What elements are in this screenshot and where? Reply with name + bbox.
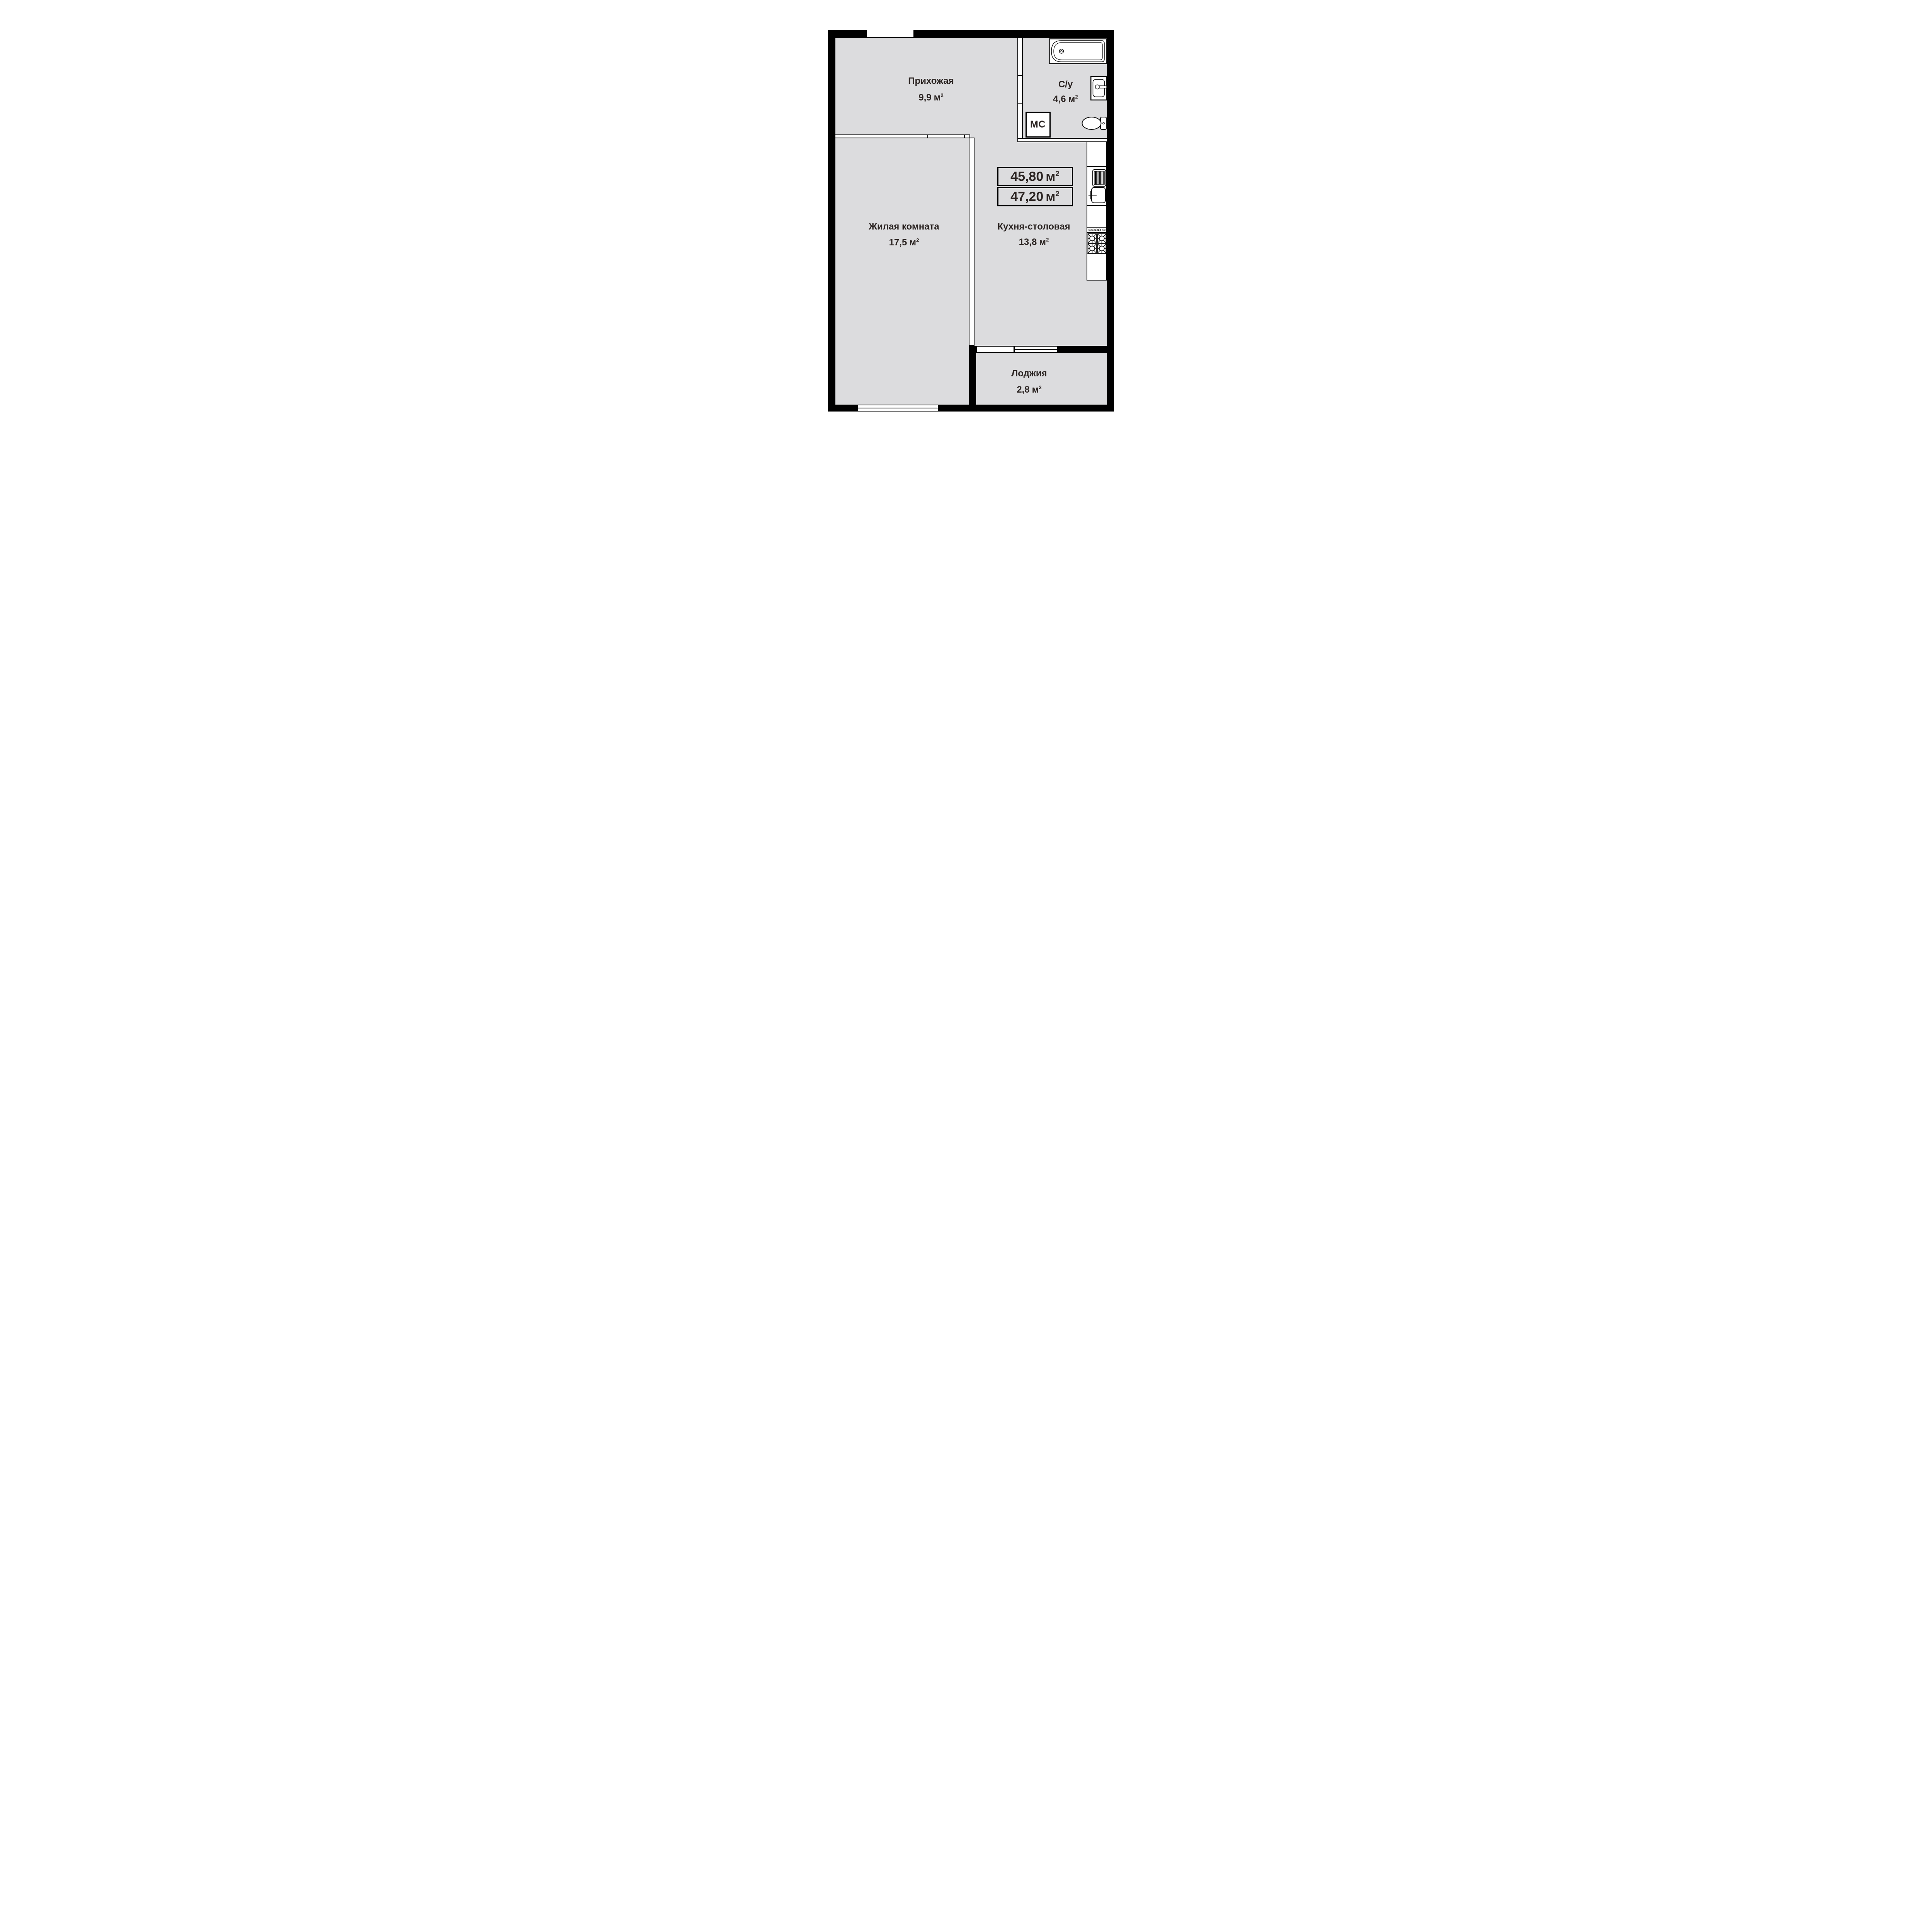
loggia-door-opening (976, 346, 1014, 353)
wall-joint-icon (1018, 103, 1022, 104)
dish-rack-icon (1093, 170, 1106, 186)
wall-joint-icon (927, 135, 928, 138)
room-label-bathroom: С/у 4,6м2 (1027, 79, 1104, 105)
total-living-value: 45,80 (1010, 169, 1043, 184)
window-top-icon (867, 30, 913, 38)
room-area: 9,9м2 (869, 90, 993, 103)
kitchen-sink-icon (1088, 187, 1105, 203)
total-overall-value: 47,20 (1010, 189, 1043, 204)
wall-left (828, 30, 835, 412)
bathtub-icon (1049, 38, 1107, 64)
room-area: 17,5м2 (838, 235, 970, 248)
loggia-wall-top-segment (1058, 346, 1107, 353)
room-label-living: Жилая комната 17,5м2 (838, 221, 970, 248)
room-name: Прихожая (869, 76, 993, 87)
washing-machine-label: МС (1030, 119, 1046, 130)
bathroom-left-wall (1017, 38, 1023, 142)
kitchen-counter (1087, 142, 1107, 281)
room-label-hallway: Прихожая 9,9м2 (869, 76, 993, 103)
room-label-kitchen: Кухня-столовая 13,8м2 (968, 221, 1100, 248)
hallway-living-wall (835, 134, 970, 138)
room-name: Кухня-столовая (968, 221, 1100, 232)
unit-label: м2 (1046, 169, 1060, 184)
room-label-loggia: Лоджия 2,8м2 (971, 368, 1087, 395)
bathroom-bottom-wall (1017, 138, 1107, 142)
room-name: Жилая комната (838, 221, 970, 232)
window-bottom-icon (857, 405, 939, 412)
washing-machine-box: МС (1026, 112, 1051, 138)
room-area: 13,8м2 (968, 235, 1100, 248)
room-area: 2,8м2 (971, 382, 1087, 395)
wall-joint-icon (964, 135, 965, 138)
toilet-icon (1081, 116, 1107, 131)
room-area: 4,6м2 (1027, 92, 1104, 105)
room-name: Лоджия (971, 368, 1087, 379)
room-name: С/у (1027, 79, 1104, 90)
unit-label: м2 (1046, 189, 1060, 204)
wall-joint-icon (1018, 75, 1022, 76)
floor-plan-page: МС (743, 0, 1190, 447)
wall-right (1107, 30, 1114, 412)
total-area-box-living: 45,80 м2 (997, 167, 1073, 186)
total-area-box-overall: 47,20 м2 (997, 187, 1073, 206)
loggia-window-icon (1014, 346, 1058, 353)
